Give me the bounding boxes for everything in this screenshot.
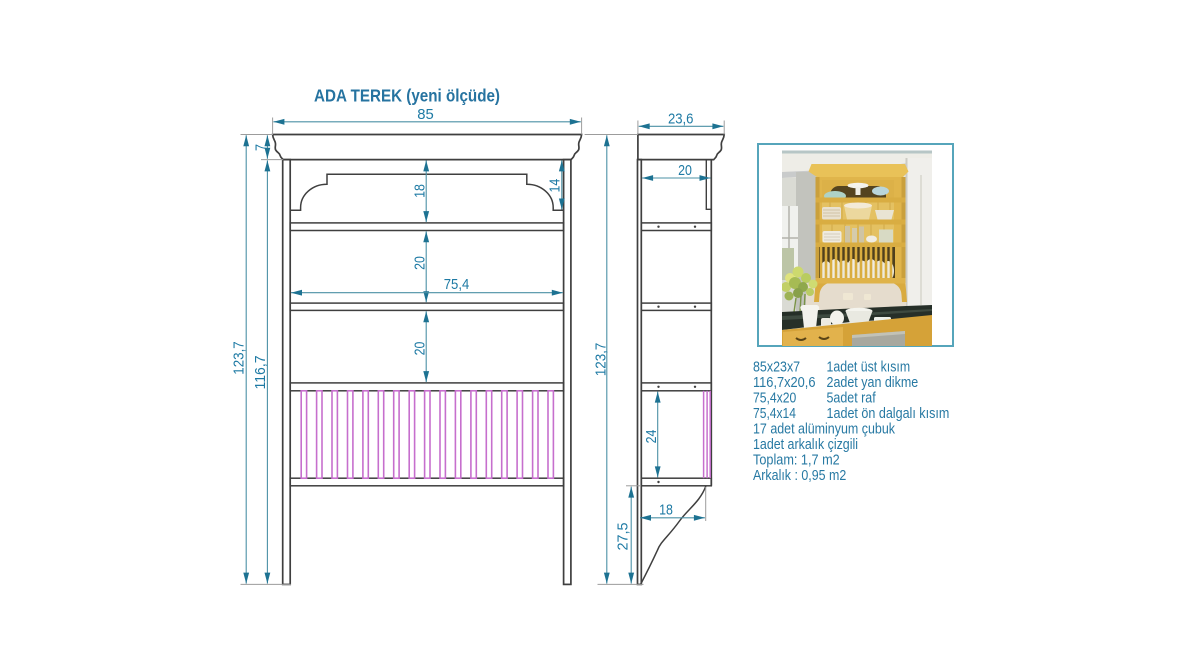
svg-text:2adet yan dikme: 2adet yan dikme	[827, 375, 919, 391]
svg-text:20: 20	[413, 342, 429, 356]
svg-text:Arkalık : 0,95 m2: Arkalık : 0,95 m2	[753, 468, 846, 484]
svg-text:20: 20	[678, 163, 692, 179]
svg-text:75,4x20: 75,4x20	[753, 391, 796, 407]
svg-text:20: 20	[413, 256, 429, 270]
svg-text:24: 24	[644, 430, 660, 444]
svg-text:Toplam: 1,7 m2: Toplam: 1,7 m2	[753, 453, 840, 469]
svg-text:7: 7	[254, 144, 270, 151]
svg-text:1adet arkalık çizgili: 1adet arkalık çizgili	[753, 437, 858, 453]
svg-text:75,4: 75,4	[444, 277, 470, 293]
svg-text:5adet raf: 5adet raf	[827, 391, 877, 407]
svg-text:14: 14	[548, 179, 564, 193]
svg-text:85: 85	[417, 107, 434, 123]
svg-text:18: 18	[659, 503, 673, 519]
svg-text:1adet üst kısım: 1adet üst kısım	[827, 360, 911, 376]
svg-text:116,7x20,6: 116,7x20,6	[753, 375, 816, 391]
svg-text:23,6: 23,6	[668, 111, 694, 127]
svg-text:75,4x14: 75,4x14	[753, 406, 796, 422]
svg-text:18: 18	[413, 184, 429, 198]
svg-text:85x23x7: 85x23x7	[753, 360, 800, 376]
svg-text:ADA TEREK (yeni ölçüde): ADA TEREK (yeni ölçüde)	[314, 86, 500, 106]
svg-text:123,7: 123,7	[594, 343, 610, 377]
svg-text:1adet ön dalgalı kısım: 1adet ön dalgalı kısım	[827, 406, 950, 422]
svg-text:116,7: 116,7	[253, 356, 269, 390]
svg-text:27,5: 27,5	[616, 523, 632, 551]
svg-text:17 adet alüminyum çubuk: 17 adet alüminyum çubuk	[753, 422, 896, 438]
svg-text:123,7: 123,7	[232, 341, 248, 375]
